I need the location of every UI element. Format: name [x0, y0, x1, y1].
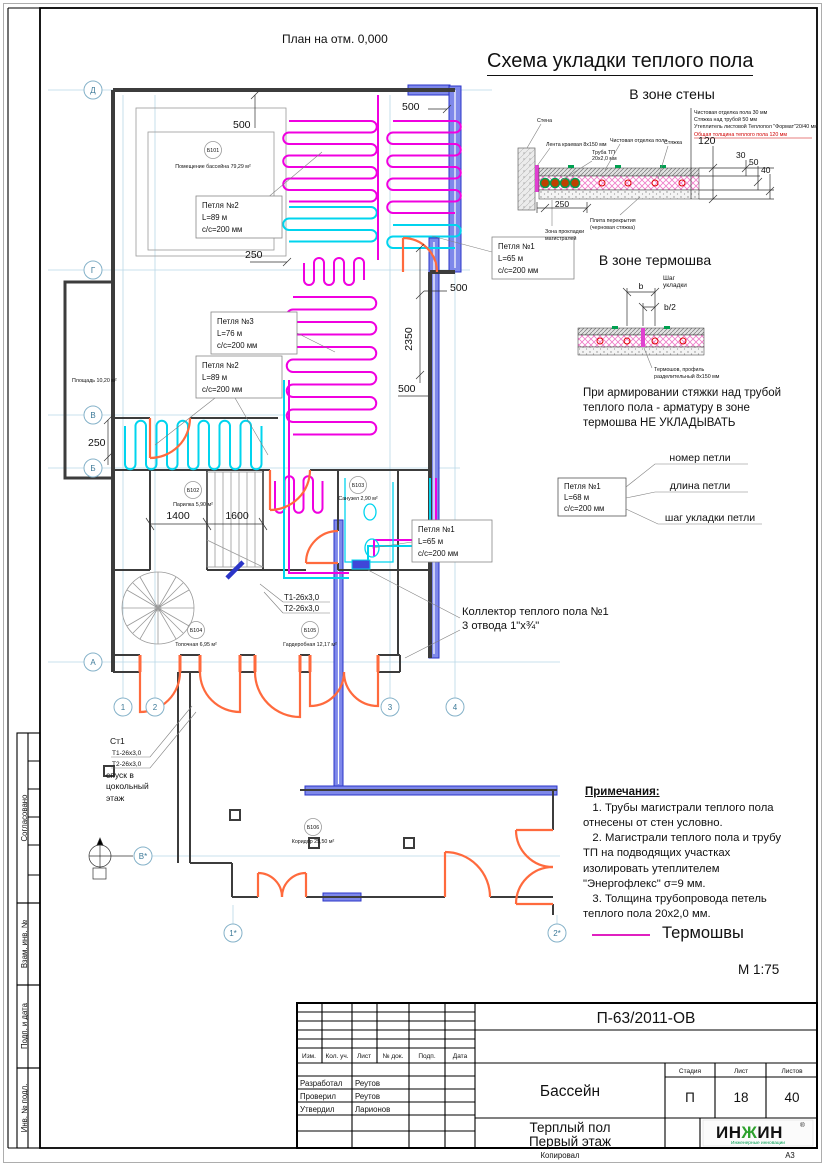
sheets-header: Листов [781, 1068, 803, 1075]
loop-step: с/с=200 мм [202, 385, 242, 394]
header-list: Лист [357, 1053, 371, 1060]
wall-dim-120: 120 [698, 135, 716, 147]
axis-label-1: 1 [121, 703, 126, 712]
collector-unit [352, 560, 370, 569]
seam-zone-note: При армировании стяжки над трубой теплог… [583, 386, 825, 431]
object-name: Бассейн [540, 1083, 600, 1100]
dim-right-500b: 500 [398, 383, 416, 395]
loop-name: Петля №1 [498, 242, 535, 251]
wall-spec-3: Утеплитель листовой Теплопол "Формат"20/… [694, 123, 818, 130]
seam-step2: укладки [663, 282, 687, 289]
loop-length: L=76 м [217, 329, 242, 338]
logo-part1: ИН [716, 1123, 742, 1142]
riser-note: спуск в цокольный этаж [106, 770, 170, 804]
svg-text:ИНЖИН: ИНЖИН [716, 1123, 783, 1142]
callout-loop1b: Петля №1 L=65 м с/с=200 мм [412, 520, 492, 562]
logo-part2: Ж [741, 1123, 758, 1142]
room-id: Б103 [352, 483, 364, 489]
wall-callout-slab1: Плита перекрытия [590, 218, 636, 224]
axis-label-g: Г [91, 266, 96, 275]
wall-zone-title: В зоне стены [592, 86, 752, 102]
stamp-vzam: Взам. инв. № [20, 920, 29, 968]
axis-bubble-3: 3 [381, 698, 399, 716]
axis-bubble-2: 2 [146, 698, 164, 716]
row-name: Реутов [355, 1092, 380, 1101]
axis-bubble-4: 4 [446, 698, 464, 716]
axis-label-v2: В* [139, 852, 147, 861]
stage-value: П [685, 1090, 695, 1105]
room-id: Б106 [307, 825, 319, 831]
axis-label-v: В [90, 411, 95, 420]
wall-callout-pipe2: 20х2,0 мм [592, 156, 617, 162]
wall-dim-40: 40 [761, 165, 771, 175]
wall-callout-zone1: Зона прокладки [545, 229, 584, 235]
drawing-sheet: Д Г В Б А В* 1 2 3 4 1* 2* Б101 Помещени… [0, 0, 825, 1166]
axis-bubble-g: Г [84, 261, 102, 279]
axis-bubble-1: 1 [114, 698, 132, 716]
axis-bubble-2s: 2* [548, 924, 566, 942]
wall-callout-slab2: (черновая стяжка) [590, 225, 635, 231]
plan-title: План на отм. 0,000 [282, 32, 388, 46]
axis-bubble-b: Б [84, 459, 102, 477]
seams-legend-label: Термошвы [662, 924, 744, 943]
company-logo: ИНЖИН ® Инженерные инновации [703, 1120, 813, 1146]
room-id: Б105 [304, 628, 316, 634]
seam-dim-b2: b/2 [664, 302, 676, 312]
callout-loop3: Петля №3 L=76 м с/с=200 мм [211, 312, 297, 354]
subject-line2: Первый этаж [529, 1134, 611, 1149]
pipes-t1: Т1-26х3,0 [284, 593, 320, 602]
wall-dim-30: 30 [736, 150, 746, 160]
wall-callout-zone2: магистралей [545, 235, 576, 242]
axis-label-b: Б [90, 464, 95, 473]
doc-number: П-63/2011-ОВ [597, 1010, 696, 1027]
seam-label2: разделительный 8х150 мм [654, 373, 720, 380]
loop-name: Петля №1 [418, 525, 455, 534]
room-name: Гардеробная 12,17 м² [283, 642, 337, 648]
dim-right-500a: 500 [450, 282, 468, 294]
seam-label1: Термошов, профиль [654, 367, 705, 373]
wall-dim-50: 50 [749, 157, 759, 167]
loop-step: с/с=200 мм [498, 266, 538, 275]
header-kol: Кол. уч. [325, 1053, 348, 1060]
header-podp: Подп. [418, 1053, 435, 1060]
wall-dim-250: 250 [555, 199, 569, 209]
sheet-header: Лист [734, 1068, 748, 1075]
loop-length: L=89 м [202, 373, 227, 382]
dim-top-left: 500 [233, 119, 251, 131]
stamp-approved: Согласовано [20, 794, 29, 842]
room-name: Коридор 25,50 м² [292, 839, 335, 845]
subject-line1: Терплый пол [529, 1120, 610, 1135]
header-doc: № док. [383, 1053, 404, 1060]
loop-step: с/с=200 мм [217, 341, 257, 350]
notes-body: 1. Трубы магистрали теплого пола отнесен… [583, 801, 825, 922]
axis-label-2s: 2* [553, 929, 561, 938]
room-name: Санузел 2,90 м² [338, 496, 378, 502]
stamp-podp: Подп. и дата [20, 1002, 29, 1049]
dim-1600: 1600 [225, 510, 249, 522]
room-name: Помещение бассейна 79,29 м² [175, 163, 251, 170]
callout-loop2a: Петля №2 L=89 м с/с=200 мм [196, 196, 282, 238]
row-role: Утвердил [300, 1105, 335, 1114]
riser-id: Ст1 [110, 736, 125, 746]
row-name: Реутов [355, 1079, 380, 1088]
loop-step: с/с=200 мм [418, 549, 458, 558]
room-name: Топочная 6,95 м² [175, 642, 217, 648]
axis-bubble-v: В [84, 406, 102, 424]
loop-length: L=65 м [418, 537, 443, 546]
legend-length-label: длина петли [670, 480, 731, 492]
logo-part3: ИН [757, 1123, 783, 1142]
callout-loop2b: Петля №2 L=89 м с/с=200 мм [196, 356, 282, 398]
legend-loop-step: с/с=200 мм [564, 504, 604, 513]
riser-t2: Т2-26х3,0 [112, 761, 142, 768]
wall-callout-wall: Стена [537, 118, 552, 124]
dim-top-right: 500 [402, 101, 420, 113]
row-role: Разработал [300, 1079, 343, 1088]
sheets-value: 40 [784, 1090, 799, 1105]
wall-callout-tape: Лента краевая 8х150 мм [546, 142, 607, 148]
wall-callout-screed: Стяжка [664, 140, 682, 146]
wall-callout-finish: Чистовая отделка пола [610, 138, 667, 144]
legend-loop-length: L=68 м [564, 493, 589, 502]
dim-1400: 1400 [166, 510, 190, 522]
copied-label: Копировал [540, 1151, 580, 1160]
logo-tagline: Инженерные инновации [731, 1140, 785, 1146]
legend-num-label: номер петли [669, 452, 730, 464]
seam-step1: Шаг [663, 275, 676, 282]
stage-header: Стадия [679, 1068, 702, 1075]
riser-t1: Т1-26х3,0 [112, 750, 142, 757]
wall-spec-1: Чистовая отделка пола 30 мм [694, 110, 768, 116]
axis-label-a: А [90, 658, 96, 667]
room-id: Б102 [187, 488, 199, 494]
room-id: Б104 [190, 628, 202, 634]
axis-bubble-a: А [84, 653, 102, 671]
legend-loop-name: Петля №1 [564, 482, 601, 491]
wall-spec-2: Стяжка над трубой 50 мм [694, 116, 757, 123]
axis-label-4: 4 [453, 703, 458, 712]
collector-label-line1: Коллектор теплого пола №1 [462, 606, 609, 618]
sheet-value: 18 [733, 1090, 748, 1105]
callout-loop1a: Петля №1 L=65 м с/с=200 мм [492, 237, 574, 279]
axis-bubble-v2: В* [134, 847, 152, 865]
pipes-t2: Т2-26х3,0 [284, 604, 320, 613]
axis-label-d: Д [90, 86, 96, 95]
format-label: А3 [785, 1151, 795, 1160]
row-role: Проверил [300, 1092, 336, 1101]
seam-zone-title: В зоне термошва [575, 252, 735, 268]
scheme-title: Схема укладки теплого пола [487, 50, 753, 76]
row-name: Ларионов [355, 1105, 390, 1114]
seam-dim-b: b [639, 281, 644, 291]
axis-label-3: 3 [388, 703, 393, 712]
loop-name: Петля №3 [217, 317, 254, 326]
logo-registered-icon: ® [800, 1121, 805, 1129]
loop-name: Петля №2 [202, 201, 239, 210]
room-id: Б101 [207, 148, 219, 154]
dim-left-250: 250 [88, 437, 106, 449]
scale-label: М 1:75 [738, 962, 779, 977]
loop-step: с/с=200 мм [202, 225, 242, 234]
seams-legend-line [592, 934, 650, 936]
axis-bubble-1s: 1* [224, 924, 242, 942]
header-data: Дата [453, 1053, 468, 1060]
collector-label-line2: 3 отвода 1"х¾" [462, 620, 539, 632]
dim-mid-250: 250 [245, 249, 263, 261]
header-izm: Изм. [302, 1053, 316, 1060]
drawing-canvas: Д Г В Б А В* 1 2 3 4 1* 2* Б101 Помещени… [0, 0, 825, 1166]
area-note: Площадь 10,20 м² [72, 378, 117, 384]
stamp-inv: Инв. № подл. [20, 1084, 29, 1133]
dim-right-2350: 2350 [403, 327, 415, 351]
axis-label-1s: 1* [229, 929, 237, 938]
loop-length: L=89 м [202, 213, 227, 222]
title-block: П-63/2011-ОВ Изм. Кол. уч. Лист № док. П… [297, 1003, 817, 1149]
notes-title: Примечания: [585, 786, 660, 798]
loop-length: L=65 м [498, 254, 523, 263]
spiral-stair [122, 572, 194, 644]
axis-label-2: 2 [153, 703, 158, 712]
loop-name: Петля №2 [202, 361, 239, 370]
room-name: Парилка 5,90 м² [173, 502, 213, 508]
axis-bubble-d: Д [84, 81, 102, 99]
legend-step-label: шаг укладки петли [665, 512, 755, 524]
